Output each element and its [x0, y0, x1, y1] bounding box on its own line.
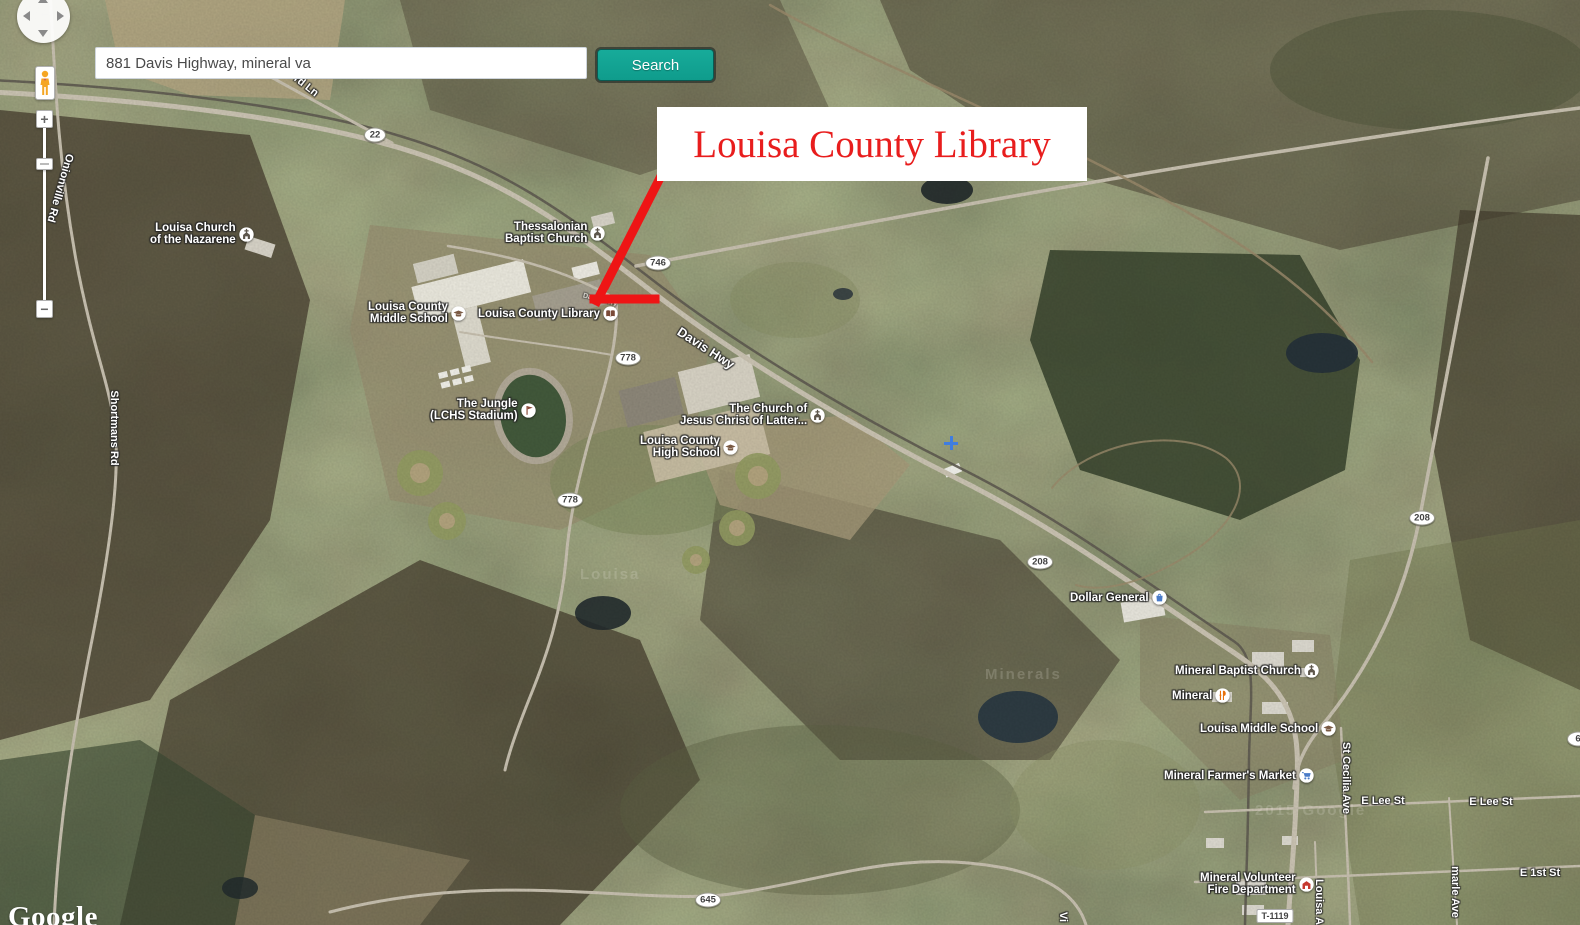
road-label: Shortmans Rd [108, 390, 120, 465]
pan-up-icon[interactable] [38, 0, 48, 3]
label-louisa-county-high-school[interactable]: Louisa CountyHigh School [640, 435, 738, 459]
label-louisa-middle-school[interactable]: Louisa Middle School [1200, 721, 1336, 736]
imagery-watermark: Minerals [985, 666, 1062, 683]
label-thessalonian-baptist-church[interactable]: ThessalonianBaptist Church [505, 221, 605, 245]
label-louisa-county-high-school-text: Louisa CountyHigh School [640, 435, 720, 459]
imagery-watermark: Louisa [580, 566, 640, 583]
church-icon [810, 408, 825, 423]
google-logo: Google [8, 901, 98, 925]
label-church-of-jesus-christ-text: The Church ofJesus Christ of Latter... [680, 403, 807, 427]
label-louisa-county-library-text: Louisa County Library [478, 308, 600, 320]
church-icon [239, 227, 254, 242]
fire-icon [1299, 877, 1314, 892]
label-mineral-baptist-church-text: Mineral Baptist Church [1175, 665, 1301, 677]
pan-down-icon[interactable] [38, 30, 48, 37]
school-icon [451, 306, 466, 321]
street-view-pegman[interactable] [35, 66, 55, 100]
church-icon [1304, 663, 1319, 678]
road-label: Vi [1057, 912, 1069, 922]
restaurant-icon [1215, 688, 1230, 703]
zoom-slider-handle[interactable] [36, 158, 53, 170]
label-louisa-church-nazarene-text: Louisa Churchof the Nazarene [150, 222, 236, 246]
label-mineral-farmers-market-text: Mineral Farmer's Market [1164, 770, 1296, 782]
church-icon [590, 226, 605, 241]
label-louisa-middle-school-text: Louisa Middle School [1200, 723, 1318, 735]
search-input[interactable] [95, 47, 587, 79]
route-shield: 208 [1027, 555, 1053, 570]
pan-right-icon[interactable] [57, 11, 64, 21]
satellite-map-canvas[interactable]: Louisa Churchof the NazareneThessalonian… [0, 0, 1580, 925]
annotation-box: Louisa County Library [657, 107, 1087, 181]
label-dollar-general[interactable]: Dollar General [1070, 590, 1167, 605]
route-shield: 778 [615, 351, 641, 366]
route-shield: 778 [557, 493, 583, 508]
route-shield: 746 [645, 256, 671, 271]
label-mineral-volunteer-fire-department[interactable]: Mineral VolunteerFire Department [1200, 872, 1314, 896]
annotation-title: Louisa County Library [693, 122, 1050, 167]
road-label: marle Ave [1449, 866, 1461, 918]
label-mineral-restaurant-text: Mineral [1172, 690, 1212, 702]
pegman-icon [38, 70, 52, 96]
road-label: E 1st St [1520, 867, 1560, 879]
zoom-slider-track[interactable] [43, 128, 46, 316]
search-bar: Search [95, 47, 587, 79]
route-shield: 208 [1409, 511, 1435, 526]
road-label: Louisa A [1313, 879, 1325, 925]
label-dollar-general-text: Dollar General [1070, 592, 1149, 604]
route-shield: 22 [364, 128, 386, 143]
road-label: E Lee St [1361, 795, 1404, 807]
pan-left-icon[interactable] [23, 11, 30, 21]
stadium-icon [521, 403, 536, 418]
library-icon [603, 306, 618, 321]
label-louisa-church-nazarene[interactable]: Louisa Churchof the Nazarene [150, 222, 254, 246]
school-icon [723, 440, 738, 455]
label-church-of-jesus-christ[interactable]: The Church ofJesus Christ of Latter... [680, 403, 825, 427]
cart-icon [1299, 768, 1314, 783]
label-mineral-volunteer-fire-department-text: Mineral VolunteerFire Department [1200, 872, 1296, 896]
label-louisa-county-middle-school-text: Louisa CountyMiddle School [368, 301, 448, 325]
label-louisa-county-library[interactable]: Louisa County Library [478, 306, 618, 321]
search-button[interactable]: Search [597, 49, 714, 81]
blue-cross-v [950, 436, 953, 450]
school-icon [1321, 721, 1336, 736]
zoom-out-button[interactable]: − [36, 300, 53, 318]
label-the-jungle-lchs-stadium[interactable]: The Jungle(LCHS Stadium) [430, 398, 536, 422]
road-label: St Cecilia Ave [1340, 742, 1352, 814]
label-mineral-baptist-church[interactable]: Mineral Baptist Church [1175, 663, 1319, 678]
route-shield: 645 [695, 893, 721, 908]
shopping-icon [1152, 590, 1167, 605]
label-mineral-restaurant[interactable]: Mineral [1172, 688, 1230, 703]
zoom-in-button[interactable]: + [36, 110, 53, 128]
road-label: E Lee St [1469, 796, 1512, 808]
zoom-control: + − [36, 110, 53, 128]
label-louisa-county-middle-school[interactable]: Louisa CountyMiddle School [368, 301, 466, 325]
blue-cross-marker [944, 436, 958, 450]
label-mineral-farmers-market[interactable]: Mineral Farmer's Market [1164, 768, 1314, 783]
route-box-label: T-1119 [1256, 909, 1293, 923]
label-thessalonian-baptist-church-text: ThessalonianBaptist Church [505, 221, 587, 245]
label-the-jungle-lchs-stadium-text: The Jungle(LCHS Stadium) [430, 398, 518, 422]
